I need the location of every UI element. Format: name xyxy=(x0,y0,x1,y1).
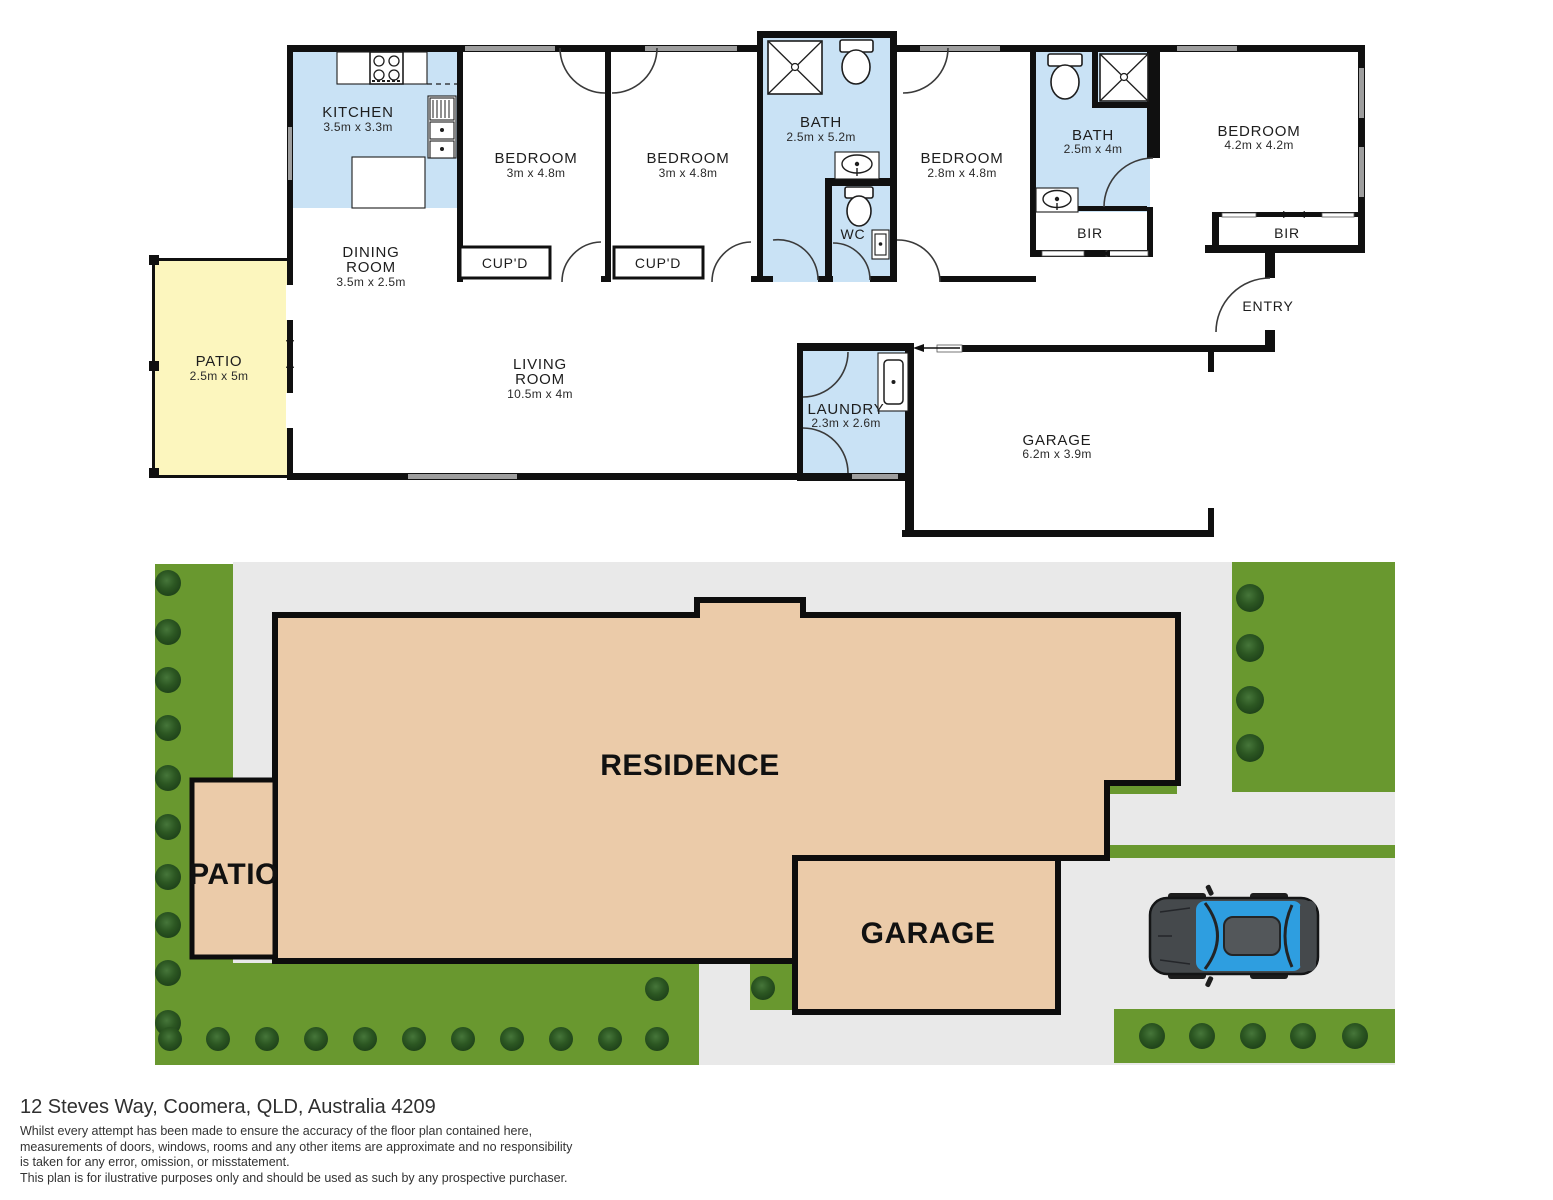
room-dims-bath2: 2.5m x 4m xyxy=(1064,142,1123,156)
bush-icon xyxy=(1139,1023,1165,1049)
room-dims-bedroom3: 2.8m x 4.8m xyxy=(927,166,996,180)
label-cupboard2: CUP'D xyxy=(635,255,681,271)
room-label-dining-2: ROOM xyxy=(346,259,396,276)
bush-icon xyxy=(353,1027,377,1051)
room-dims-bedroom4: 4.2m x 4.2m xyxy=(1224,138,1293,152)
disclaimer-line: is taken for any error, omission, or mis… xyxy=(20,1155,572,1171)
bush-icon xyxy=(155,667,181,693)
bush-icon xyxy=(645,1027,669,1051)
bush-icon xyxy=(155,715,181,741)
sink-icon xyxy=(835,152,879,179)
floor-plan: KITCHEN 3.5m x 3.3m DINING ROOM 3.5m x 2… xyxy=(149,31,1365,537)
label-bir1: BIR xyxy=(1077,225,1103,241)
property-address: 12 Steves Way, Coomera, QLD, Australia 4… xyxy=(20,1096,436,1119)
disclaimer-line: Whilst every attempt has been made to en… xyxy=(20,1124,572,1140)
bush-icon xyxy=(1240,1023,1266,1049)
bush-icon xyxy=(155,960,181,986)
bush-icon xyxy=(1342,1023,1368,1049)
bush-icon xyxy=(1236,584,1264,612)
bush-icon xyxy=(1189,1023,1215,1049)
site-label-patio: PATIO xyxy=(189,858,279,891)
cistern-icon xyxy=(872,230,889,259)
disclaimer-line: measurements of doors, windows, rooms an… xyxy=(20,1140,572,1156)
room-label-wc: WC xyxy=(841,226,866,242)
label-cupboard1: CUP'D xyxy=(482,255,528,271)
floorplan-page: KITCHEN 3.5m x 3.3m DINING ROOM 3.5m x 2… xyxy=(0,0,1553,1200)
room-dims-living: 10.5m x 4m xyxy=(507,387,573,401)
room-dims-dining: 3.5m x 2.5m xyxy=(336,275,405,289)
bush-icon xyxy=(645,977,669,1001)
bush-icon xyxy=(155,814,181,840)
bush-icon xyxy=(155,619,181,645)
room-dims-kitchen: 3.5m x 3.3m xyxy=(323,120,392,134)
disclaimer-text: Whilst every attempt has been made to en… xyxy=(20,1124,572,1186)
kitchen-bench xyxy=(352,157,425,208)
toilet-icon xyxy=(845,187,873,226)
fridge-icon xyxy=(430,98,454,120)
site-plan: RESIDENCE GARAGE PATIO xyxy=(155,562,1395,1065)
site-label-residence: RESIDENCE xyxy=(600,749,780,782)
bush-icon xyxy=(255,1027,279,1051)
bush-icon xyxy=(598,1027,622,1051)
sink-icon xyxy=(1036,188,1078,212)
room-dims-garage: 6.2m x 3.9m xyxy=(1022,447,1091,461)
room-label-bedroom1: BEDROOM xyxy=(494,150,577,167)
room-label-patio: PATIO xyxy=(196,353,243,370)
shower-icon xyxy=(768,41,822,94)
room-dims-bath1: 2.5m x 5.2m xyxy=(786,130,855,144)
toilet-icon xyxy=(1048,54,1082,99)
label-entry: ENTRY xyxy=(1242,298,1293,314)
room-label-bath1: BATH xyxy=(800,114,842,131)
label-bir2: BIR xyxy=(1274,225,1300,241)
bush-icon xyxy=(155,765,181,791)
bush-icon xyxy=(451,1027,475,1051)
disclaimer-line: This plan is for ilustrative purposes on… xyxy=(20,1171,572,1187)
bush-icon xyxy=(1236,634,1264,662)
bush-icon xyxy=(158,1027,182,1051)
stove-icon xyxy=(370,52,403,84)
bush-icon xyxy=(1236,734,1264,762)
room-dims-bedroom2: 3m x 4.8m xyxy=(659,166,718,180)
room-label-bedroom2: BEDROOM xyxy=(646,150,729,167)
bush-icon xyxy=(155,864,181,890)
bush-icon xyxy=(206,1027,230,1051)
bush-icon xyxy=(751,976,775,1000)
room-label-living-2: ROOM xyxy=(515,371,565,388)
plan-drawing: KITCHEN 3.5m x 3.3m DINING ROOM 3.5m x 2… xyxy=(0,0,1553,1200)
bush-icon xyxy=(1290,1023,1316,1049)
site-label-garage: GARAGE xyxy=(861,917,996,950)
room-label-kitchen: KITCHEN xyxy=(322,104,393,121)
bush-icon xyxy=(402,1027,426,1051)
room-dims-bedroom1: 3m x 4.8m xyxy=(507,166,566,180)
bush-icon xyxy=(155,912,181,938)
car-illustration xyxy=(1150,884,1318,988)
room-dims-patio: 2.5m x 5m xyxy=(190,369,249,383)
room-label-bedroom3: BEDROOM xyxy=(920,150,1003,167)
bush-icon xyxy=(304,1027,328,1051)
bush-icon xyxy=(1236,686,1264,714)
bush-icon xyxy=(155,570,181,596)
shower-icon xyxy=(1100,54,1148,101)
bush-icon xyxy=(500,1027,524,1051)
bush-icon xyxy=(549,1027,573,1051)
room-dims-laundry: 2.3m x 2.6m xyxy=(811,416,880,430)
